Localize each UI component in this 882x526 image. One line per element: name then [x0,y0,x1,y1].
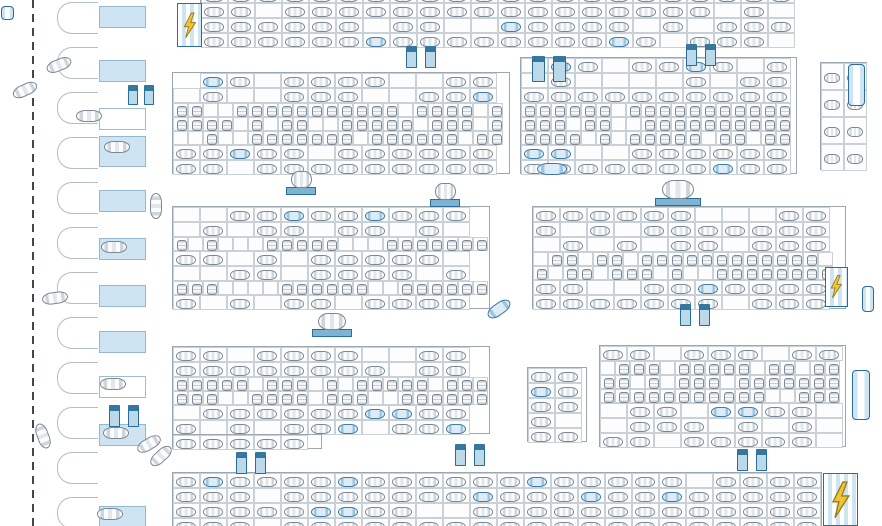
car-icon [97,508,123,520]
car-icon [387,134,397,145]
stairs-icon [680,304,710,326]
parking-spot [281,295,308,310]
car-icon [657,255,667,266]
parking-spot [228,18,255,33]
parking-spot [765,375,780,389]
parking-spot [765,389,780,403]
car-icon [525,120,535,131]
parking-spot [368,117,383,131]
car-icon [474,0,494,2]
stairs-pillar [236,452,247,474]
car-icon [432,134,442,145]
car-icon [554,477,574,487]
car-icon [536,299,556,309]
car-icon [649,364,659,375]
parking-bay [57,317,98,349]
parking-spot [281,473,308,488]
car-icon [312,240,322,251]
car-icon [765,120,775,131]
parking-spot [606,33,633,48]
parking-spot [668,252,683,266]
parking-spot [281,362,308,377]
car-icon [100,378,126,390]
car-icon [709,364,719,375]
car-icon [230,409,250,419]
parking-spot [368,391,383,405]
parking-spot [762,403,789,418]
parking-spot [263,377,278,391]
parking-spot [611,117,626,131]
car-icon [230,477,250,487]
ramp-icon [862,286,874,312]
stairs-pillar [474,444,485,466]
parking-spot [458,237,473,251]
car-icon [207,120,217,131]
car-icon [779,284,799,294]
car-icon [720,106,730,117]
parking-spot [641,280,668,295]
parking-spot [773,266,788,280]
parking-spot [335,251,362,266]
car-icon [342,284,352,295]
parking-spot [656,58,683,73]
car-icon [829,378,839,389]
parking-spot [728,266,743,280]
car-icon [203,164,223,174]
car-icon [365,149,385,159]
car-icon [662,507,682,517]
parking-spot [737,73,764,88]
car-icon [717,255,727,266]
car-icon [524,149,544,159]
car-icon [419,409,439,419]
parking-spot [683,145,710,160]
parking-spot [203,281,218,295]
parking-spot [383,281,398,295]
parking-spot [695,280,722,295]
parking-spot [578,473,605,488]
car-icon [258,37,278,47]
car-icon [752,226,772,236]
parking-spot [203,377,218,391]
parking-spot [200,160,227,175]
car-icon [192,284,202,295]
parking-spot [227,347,254,362]
parking-spot [362,518,389,526]
parking-spot [593,252,608,266]
car-icon [311,255,331,265]
car-icon [531,432,551,442]
parking-spot [566,117,581,131]
parking-spot [614,207,641,222]
car-icon [446,92,466,102]
car-icon [750,106,760,117]
parking-spot [444,33,471,48]
car-icon [603,437,623,447]
car-icon [357,380,367,391]
parking-spot [200,266,227,281]
parking-spot [638,252,653,266]
parking-spot [611,103,626,117]
parking-spot [713,252,728,266]
car-icon [752,284,772,294]
parking-spot [173,362,200,377]
parking-spot [353,391,368,405]
parking-spot [473,391,488,405]
parking-spot [761,117,776,131]
car-icon [500,522,520,526]
parking-spot [722,280,749,295]
parking-spot [722,295,749,310]
parking-spot [488,103,503,117]
parking-spot [681,403,708,418]
parking-spot [581,103,596,117]
parking-spot [710,160,737,175]
car-icon [711,350,731,360]
parking-spot [654,346,681,361]
parking-spot [578,488,605,503]
parking-spot [308,503,335,518]
car-icon [419,477,439,487]
parking-spot [282,18,309,33]
parking-spot [587,295,614,310]
entrance-icon [655,180,701,206]
car-icon [462,240,472,251]
parking-spot [254,405,281,420]
parking-spot [254,488,281,503]
parking-spot [713,518,740,526]
parking-spot [659,518,686,526]
parking-spot [335,73,362,88]
car-icon [675,106,685,117]
entrance-icon [312,313,352,337]
parking-spot [362,73,389,88]
car-icon [709,392,719,403]
parking-spot [443,503,470,518]
car-icon [552,255,562,266]
parking-spot [710,88,737,103]
parking-spot [470,145,497,160]
car-icon [612,269,622,280]
car-icon [177,394,187,405]
parking-spot [254,73,281,88]
car-icon [716,492,736,502]
parking-spot [173,103,188,117]
parking-spot [200,503,227,518]
parking-spot [254,503,281,518]
car-icon [711,437,731,447]
parking-spot [233,103,248,117]
car-icon [705,106,715,117]
parking-spot [362,88,389,103]
parking-spot [695,207,722,222]
car-icon [222,380,232,391]
parking-spot [389,73,416,88]
car-icon [528,0,548,2]
car-icon [528,37,548,47]
entrance-base [430,199,460,207]
parking-spot [633,18,660,33]
parking-spot [741,33,768,48]
parking-spot [794,473,821,488]
parking-spot [383,103,398,117]
car-icon [365,492,385,502]
parking-spot [722,207,749,222]
stairs-pillar [699,304,710,326]
car-icon [537,163,567,175]
car-icon [176,507,196,517]
parking-spot [200,435,227,450]
ramp-icon [848,64,865,106]
parking-spot [654,403,681,418]
stairs-pillar [455,444,466,466]
car-icon [446,299,466,309]
parking-spot [816,418,843,433]
parking-spot [746,117,761,131]
car-icon [252,106,262,117]
parking-spot [173,160,200,175]
parking-spot [173,391,188,405]
car-icon [777,255,787,266]
parking-spot [254,295,281,310]
parking-spot [335,295,362,310]
car-icon [282,380,292,391]
parking-spot [525,3,552,18]
parking-spot [660,389,675,403]
car-icon [806,284,826,294]
parking-spot [390,3,417,18]
parking-spot [701,131,716,145]
parking-spot [803,237,830,252]
parking-spot [737,58,764,73]
car-icon [829,392,839,403]
car-icon [644,299,664,309]
parking-spot [780,375,795,389]
parking-spot [773,252,788,266]
car-icon [282,106,292,117]
car-icon [528,7,548,17]
car-icon [792,437,812,447]
parking-spot [632,473,659,488]
parking-spot [686,117,701,131]
parking-spot [560,207,587,222]
car-icon [338,92,358,102]
parking-spot [656,145,683,160]
car-icon [582,22,602,32]
stairs-icon [532,56,566,82]
car-icon [447,240,457,251]
parking-spot [335,347,362,362]
ramp-icon [1,6,14,20]
parking-spot [524,488,551,503]
parking-spot [668,266,683,280]
parking-spot [681,346,708,361]
parking-spot [416,420,443,435]
car-icon [446,164,466,174]
parking-spot [720,361,735,375]
parking-spot [188,103,203,117]
parking-spot [735,418,762,433]
car-icon [474,37,494,47]
car-icon [284,507,304,517]
car-icon [176,351,196,361]
parking-spot [173,222,200,237]
car-icon [446,270,466,280]
car-icon [713,62,733,72]
car-icon [446,492,466,502]
parking-spot [308,237,323,251]
car-icon [698,284,718,294]
parking-spot [548,266,563,280]
parking-spot [575,58,602,73]
parking-spot [335,160,362,175]
parking-spot [428,281,443,295]
car-icon [686,149,706,159]
car-icon [770,507,790,517]
stairs-pillar [756,449,767,471]
parking-spot [293,377,308,391]
car-icon [501,7,521,17]
parking-spot [443,266,470,281]
car-icon [204,22,224,32]
car-icon [419,366,439,376]
car-icon [365,255,385,265]
parking-spot [233,281,248,295]
parking-spot [416,347,443,362]
parking-spot [578,266,593,280]
car-icon [338,255,358,265]
car-icon [604,392,614,403]
parking-spot [668,237,695,252]
car-icon [555,0,575,2]
car-icon [649,378,659,389]
car-icon [357,120,367,131]
parking-spot [627,418,654,433]
car-icon [720,120,730,131]
car-icon [762,255,772,266]
parking-spot [335,222,362,237]
parking-spot [416,88,443,103]
car-icon [744,7,764,17]
parking-spot [521,103,536,117]
car-icon [662,477,682,487]
car-icon [659,62,679,72]
parking-spot [690,375,705,389]
car-icon [744,0,764,2]
parking-spot [227,73,254,88]
parking-spot [600,403,627,418]
parking-spot [443,251,470,266]
car-icon [203,409,223,419]
car-icon [578,62,598,72]
car-icon [338,226,358,236]
car-icon [814,392,824,403]
car-icon [806,226,826,236]
parking-spot [200,73,227,88]
stairs-icon [128,85,154,105]
car-icon [725,284,745,294]
parking-spot [200,251,227,266]
car-icon [634,364,644,375]
stairs-pillar [406,46,417,68]
car-icon [282,394,292,405]
parking-spot [413,117,428,131]
car-icon [672,255,682,266]
car-icon [578,164,598,174]
car-icon [177,284,187,295]
car-icon [690,120,700,131]
entrance-base [655,198,701,206]
parking-spot [336,18,363,33]
parking-spot [653,266,668,280]
parking-spot [656,117,671,131]
car-icon [743,522,763,526]
car-icon [797,522,817,526]
parking-spot [660,33,687,48]
parking-spot [471,18,498,33]
parking-spot [443,488,470,503]
car-icon [555,106,565,117]
car-icon [311,409,331,419]
parking-spot [416,251,443,266]
car-icon [660,106,670,117]
parking-spot [551,503,578,518]
parking-spot [762,433,789,448]
parking-spot [552,3,579,18]
parking-spot [488,131,503,145]
car-icon [645,120,655,131]
car-icon [590,299,610,309]
car-icon [743,477,763,487]
parking-spot [309,3,336,18]
car-icon [570,106,580,117]
parking-spot [803,222,830,237]
parking-spot [254,251,281,266]
car-icon [779,241,799,251]
car-icon [675,134,685,145]
car-icon [338,492,358,502]
parking-spot [248,103,263,117]
parking-spot [629,73,656,88]
car-icon [230,439,250,449]
car-icon [338,507,358,517]
parking-spot [173,131,188,145]
parking-spot [788,266,803,280]
parking-spot [710,73,737,88]
parking-spot [338,117,353,131]
parking-spot [282,33,309,48]
car-icon [284,477,304,487]
parking-spot [188,377,203,391]
parking-spot [428,131,443,145]
parking-spot [353,131,368,145]
car-icon [492,120,502,131]
parking-spot [735,389,750,403]
parking-spot [278,391,293,405]
parking-bay [57,227,98,259]
car-icon [392,149,412,159]
car-icon [609,37,629,47]
car-icon [531,402,551,412]
car-icon [536,284,556,294]
car-icon [327,240,337,251]
car-icon [392,477,412,487]
parking-spot [690,361,705,375]
car-icon [419,226,439,236]
parking-spot [552,33,579,48]
parking-spot [413,237,428,251]
car-icon [447,0,467,2]
